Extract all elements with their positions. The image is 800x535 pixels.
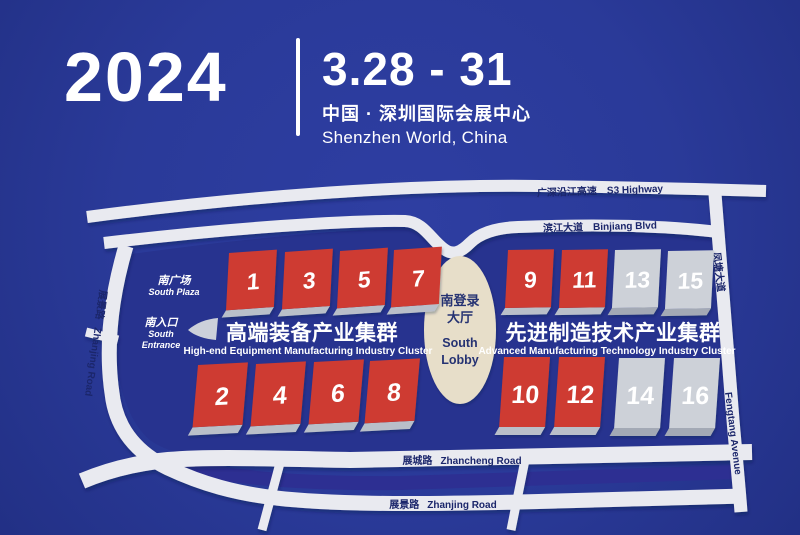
south-entrance-label-en1: South — [148, 329, 174, 339]
hall-number: 7 — [411, 265, 425, 292]
hall-number: 11 — [572, 266, 598, 292]
cluster-right-title-cn: 先进制造技术产业集群 — [506, 321, 721, 345]
south-entrance-label-en2: Entrance — [142, 340, 181, 350]
hall-number: 5 — [357, 266, 371, 293]
cluster-left-title-en: High-end Equipment Manufacturing Industr… — [184, 346, 433, 357]
road-label-zhancheng: 展城路Zhancheng Road — [402, 454, 521, 467]
hall-number: 13 — [624, 266, 651, 292]
road-s3 — [87, 186, 766, 217]
cluster-left-title-cn: 高端装备产业集群 — [226, 321, 398, 345]
south-lobby-label-en1: South — [442, 336, 477, 350]
road-label-zhanjing: 展景路Zhanjing Road — [389, 498, 496, 511]
hall-number: 16 — [680, 382, 710, 410]
hall-number: 12 — [565, 381, 595, 409]
south-lobby-label-en2: Lobby — [441, 353, 479, 367]
hall-number: 6 — [330, 379, 346, 408]
hall-15: 15 — [661, 250, 714, 316]
south-plaza-label-en: South Plaza — [148, 287, 199, 297]
canal — [180, 466, 738, 483]
hall-number: 9 — [523, 267, 537, 293]
hall-9: 9 — [501, 249, 554, 315]
hall-number: 10 — [510, 381, 540, 409]
hall-number: 14 — [625, 382, 655, 410]
south-lobby-label-cn1: 南登录 — [440, 293, 479, 308]
hall-3: 3 — [278, 249, 333, 317]
south-plaza-label-cn: 南广场 — [158, 274, 193, 287]
hall-number: 3 — [302, 267, 316, 294]
hall-5: 5 — [333, 248, 388, 316]
hall-number: 1 — [246, 268, 260, 295]
hall-11: 11 — [555, 249, 608, 315]
south-lobby-label-cn2: 大厅 — [447, 310, 473, 325]
hall-13: 13 — [608, 249, 661, 315]
south-entrance-label-cn: 南入口 — [145, 316, 179, 329]
hall-number: 15 — [677, 267, 704, 293]
hall-1: 1 — [222, 250, 277, 318]
cluster-right-title-en: Advanced Manufacturing Technology Indust… — [478, 346, 735, 357]
hall-7: 7 — [387, 247, 442, 315]
poster: 2024 3.28 - 31 中国 · 深圳国际会展中心 Shenzhen Wo… — [0, 0, 800, 535]
hall-number: 2 — [214, 382, 230, 411]
venue-map: 广深沿江高速S3 Highway 滨江大道Binjiang Blvd 凤塘大道 … — [0, 0, 800, 535]
hall-number: 4 — [272, 381, 288, 410]
hall-number: 8 — [386, 378, 402, 407]
